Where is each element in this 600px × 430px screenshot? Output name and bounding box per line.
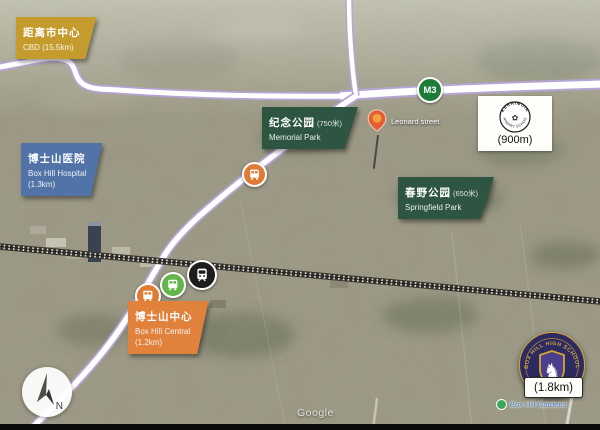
train-icon <box>194 267 210 283</box>
gmaps-poi-label: Box Hill Gardens <box>496 399 566 410</box>
kerrimuir-school-card: KERRIMUIR PRIMARY SCHOOL ✿ (900m) <box>478 96 552 151</box>
memorial-park-zh: 纪念公园 <box>269 117 315 130</box>
springfield-park-distance: (650米) <box>453 189 478 198</box>
central-label-en: Box Hill Central <box>135 327 193 337</box>
school-logo-flower-icon: ✿ <box>512 114 519 123</box>
box-hill-central-label: 博士山中心 Box Hill Central (1.2km) <box>128 301 209 354</box>
road-network <box>0 0 600 430</box>
compass-north-icon <box>22 367 72 417</box>
freeway-m3-badge: M3 <box>417 77 443 103</box>
central-label-zh: 博士山中心 <box>135 311 193 324</box>
railway-line <box>0 246 600 302</box>
memorial-park-en: Memorial Park <box>269 133 342 143</box>
cbd-label-zh: 距离市中心 <box>23 27 81 40</box>
hospital-label-en: Box Hill Hospital <box>28 169 86 179</box>
compass: N <box>22 367 72 417</box>
m3-badge-text: M3 <box>423 85 436 96</box>
kerrimuir-distance: (900m) <box>478 134 552 146</box>
compass-n-label: N <box>56 401 63 412</box>
high-school-distance: (1.8km) <box>524 377 583 398</box>
central-label-distance: (1.2km) <box>135 338 193 348</box>
bus-icon <box>248 168 261 181</box>
memorial-park-distance: (750米) <box>317 119 342 128</box>
bus-icon <box>166 278 180 292</box>
hospital-label-zh: 博士山医院 <box>28 153 86 166</box>
springfield-park-en: Springfield Park <box>405 203 478 213</box>
tree-icon <box>496 399 507 410</box>
bus-stop-marker <box>242 162 267 187</box>
poi-name: Box Hill Gardens <box>510 400 566 409</box>
train-station-marker <box>187 260 217 290</box>
bottom-letterbox <box>0 424 600 430</box>
north-stub-road <box>349 0 356 96</box>
map-pin-icon <box>366 109 388 139</box>
freeway-m3-road <box>340 84 600 96</box>
springfield-park-label: 春野公园(650米) Springfield Park <box>398 177 494 219</box>
property-street-label: Leonard street <box>391 117 439 126</box>
hospital-label: 博士山医院 Box Hill Hospital (1.3km) <box>21 143 102 196</box>
green-bus-marker <box>160 272 186 298</box>
cbd-label-distance: CBD (15.5km) <box>23 43 81 53</box>
cbd-distance-label: 距离市中心 CBD (15.5km) <box>16 17 97 59</box>
property-pin <box>366 109 388 139</box>
google-watermark: Google <box>297 407 334 419</box>
hospital-label-distance: (1.3km) <box>28 180 86 190</box>
springfield-park-zh: 春野公园 <box>405 187 451 200</box>
map-canvas: 距离市中心 CBD (15.5km) 博士山医院 Box Hill Hospit… <box>0 0 600 430</box>
memorial-park-label: 纪念公园(750米) Memorial Park <box>262 107 358 149</box>
kerrimuir-school-logo: KERRIMUIR PRIMARY SCHOOL ✿ <box>478 98 552 136</box>
